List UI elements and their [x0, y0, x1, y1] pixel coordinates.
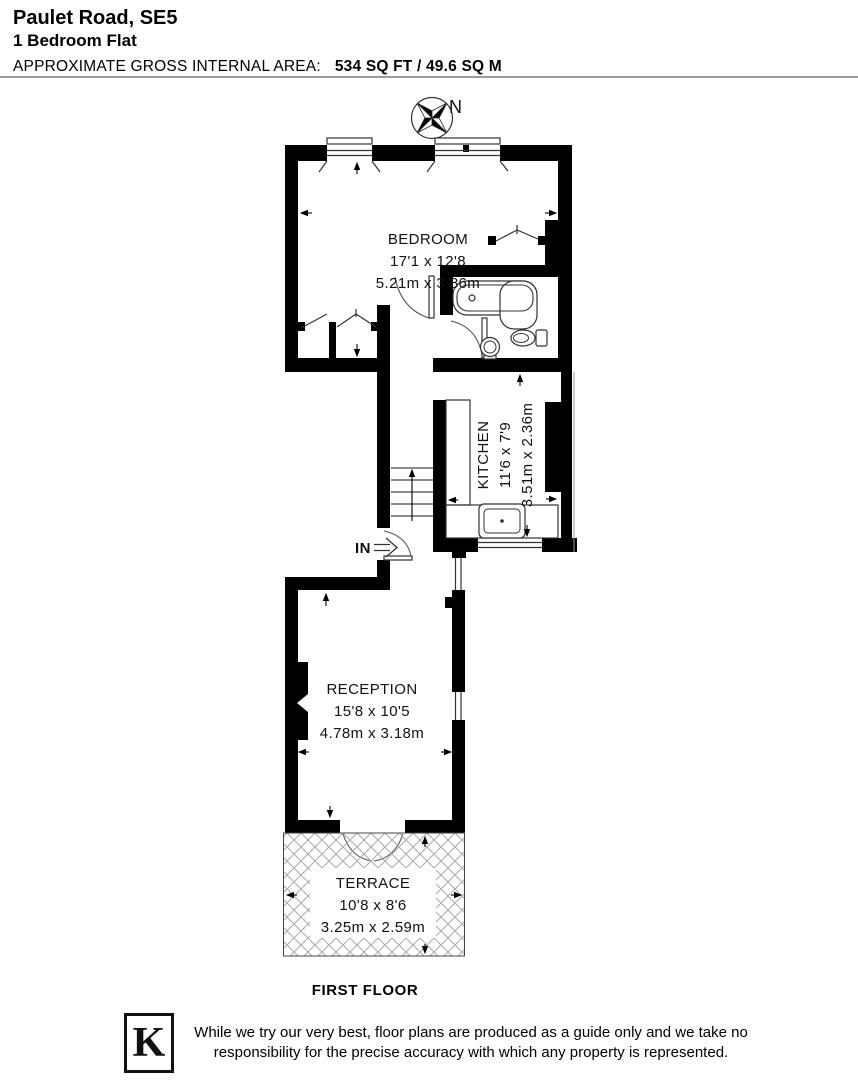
toilet — [511, 330, 547, 346]
brand-logo: K — [124, 1013, 174, 1073]
kitchen-dims-metric: 3.51m x 2.36m — [519, 403, 536, 507]
bedroom-dims-imperial: 17'1 x 12'8 — [390, 253, 466, 270]
reception-dims-imperial: 15'8 x 10'5 — [334, 703, 410, 720]
reception-dims-metric: 4.78m x 3.18m — [320, 725, 424, 742]
wardrobe-doors-bathroom-side — [496, 225, 538, 241]
hall-window — [456, 558, 462, 590]
north-label: N — [449, 97, 462, 117]
bedroom-dims-metric: 5.21m x 3.86m — [376, 275, 480, 292]
floorplan-svg: N — [0, 0, 858, 1080]
floor-label: FIRST FLOOR — [312, 982, 419, 999]
terrace-area — [284, 833, 465, 956]
kitchen-dims-imperial: 11'6 x 7'9 — [497, 422, 514, 488]
entrance-in-label: IN — [355, 540, 371, 557]
wardrobe-doors-bedroom — [301, 309, 376, 328]
kitchen-window — [478, 543, 542, 548]
terrace-dims-imperial: 10'8 x 8'6 — [339, 897, 406, 914]
bedroom-label: BEDROOM — [388, 231, 468, 248]
floorplan-page: Paulet Road, SE5 1 Bedroom Flat APPROXIM… — [0, 0, 858, 1080]
kitchen-label: KITCHEN — [475, 421, 492, 490]
entrance-arrow-icon — [374, 538, 397, 557]
compass-rose: N — [402, 88, 462, 147]
disclaimer-text: While we try our very best, floor plans … — [175, 1023, 767, 1063]
reception-label: RECEPTION — [326, 681, 417, 698]
bedroom-window-left — [327, 138, 372, 156]
brand-logo-letter: K — [133, 1019, 166, 1067]
kitchen-sink — [479, 504, 525, 538]
reception-window — [456, 692, 462, 720]
stairs — [391, 468, 433, 521]
terrace-dims-metric: 3.25m x 2.59m — [321, 919, 425, 936]
kitchen-chimney-breast — [545, 402, 572, 492]
terrace-label: TERRACE — [336, 875, 410, 892]
entrance-marker: IN — [355, 538, 397, 557]
window-reveal-splays — [319, 161, 508, 172]
